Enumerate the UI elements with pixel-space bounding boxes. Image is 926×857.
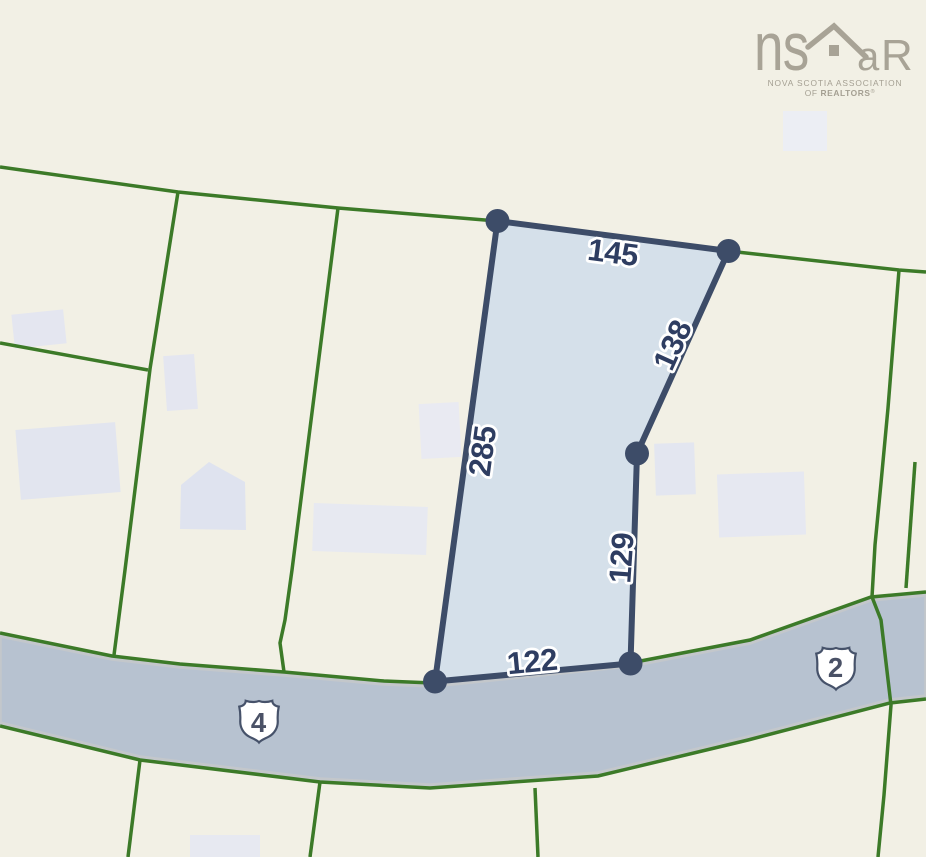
svg-text:122: 122: [505, 642, 558, 681]
svg-text:2: 2: [828, 652, 843, 683]
svg-text:R: R: [881, 31, 913, 80]
svg-text:285: 285: [462, 424, 503, 479]
svg-text:NOVA SCOTIA ASSOCIATION: NOVA SCOTIA ASSOCIATION: [768, 78, 903, 88]
svg-text:145: 145: [586, 232, 641, 273]
svg-text:OF REALTORS®: OF REALTORS®: [805, 88, 876, 98]
svg-text:a: a: [857, 35, 880, 79]
svg-text:4: 4: [251, 707, 267, 738]
svg-text:ns: ns: [754, 9, 808, 85]
svg-text:129: 129: [602, 532, 640, 585]
